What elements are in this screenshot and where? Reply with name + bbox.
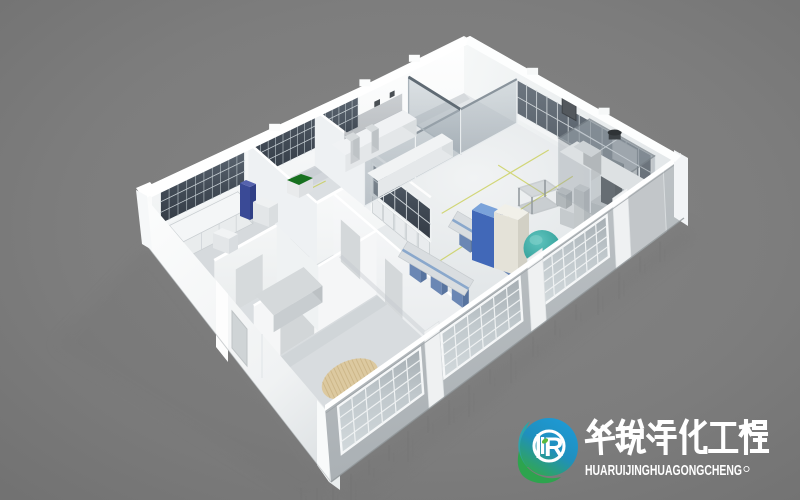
svg-text:R: R (544, 432, 564, 462)
svg-text:HUARUIJINGHUAGONGCHENG: HUARUIJINGHUAGONGCHENG (585, 462, 742, 479)
